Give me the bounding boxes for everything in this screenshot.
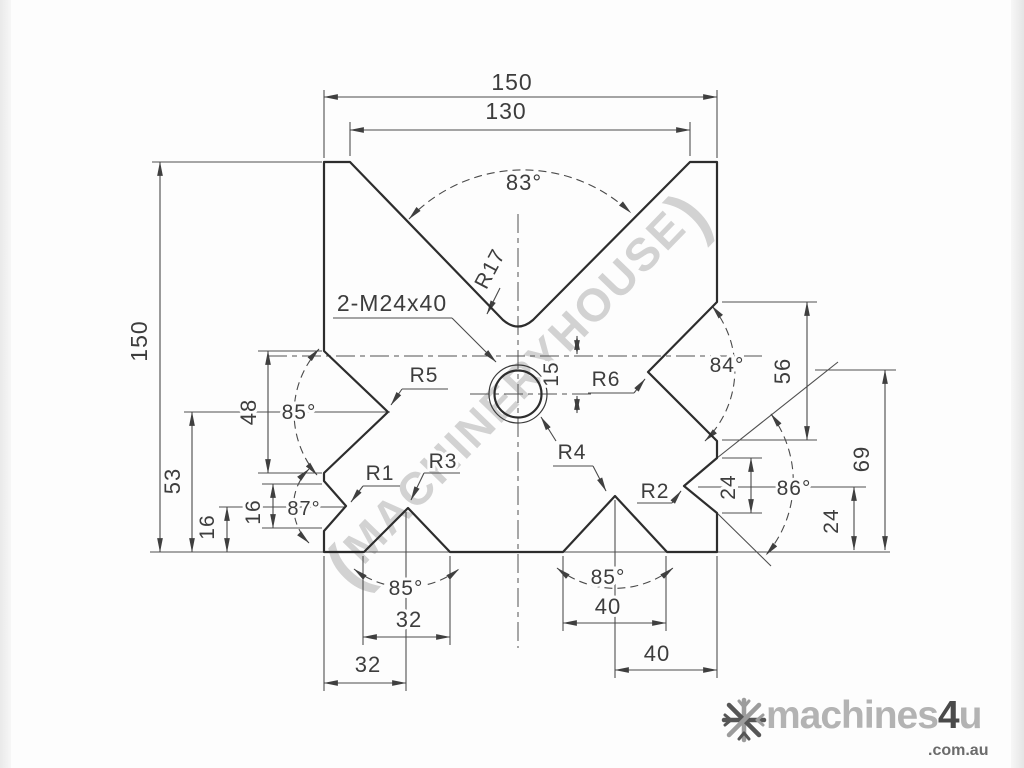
logo-wordmark[interactable]: machines4u — [766, 696, 981, 735]
angle-label-left: 85° — [282, 401, 317, 424]
radius-label-r2: R2 — [641, 480, 670, 503]
dim-label-top-opening: 130 — [485, 98, 526, 124]
dim-label-40-position: 40 — [644, 641, 670, 666]
angle-label-bottom-left: 85° — [389, 577, 424, 600]
dim-label-24-inner: 24 — [717, 474, 740, 499]
dim-label-32-opening: 32 — [396, 607, 422, 632]
dim-label-56: 56 — [770, 358, 795, 384]
dim-label-top-width: 150 — [491, 69, 532, 95]
dim-label-15: 15 — [540, 361, 563, 386]
die-block-drawing: 150 130 83° R17 2-M24x40 R5 R6 15 84° 56… — [0, 0, 1024, 768]
logo-domain: .com.au — [928, 742, 988, 760]
angle-label-left-small: 87° — [287, 498, 320, 520]
dim-label-40-opening: 40 — [595, 594, 621, 619]
angle-label-right: 84° — [710, 354, 745, 377]
angle-label-right-small: 86° — [777, 477, 812, 500]
centerlines — [268, 214, 762, 648]
scanned-technical-drawing: (MACHINERYHOUSE) — [0, 0, 1024, 768]
logo-part-u: u — [959, 694, 982, 737]
dim-label-left-height: 150 — [126, 320, 152, 361]
radius-label-r6: R6 — [592, 368, 621, 391]
dim-label-24-outer: 24 — [820, 508, 843, 533]
angle-label-top: 83° — [506, 170, 542, 195]
thread-note-label: 2-M24x40 — [337, 290, 447, 316]
dim-label-53: 53 — [160, 468, 185, 494]
radius-label-r4: R4 — [558, 441, 587, 464]
logo-part-machines: machines — [766, 694, 938, 737]
dimension-labels: 150 130 83° R17 2-M24x40 R5 R6 15 84° 56… — [126, 69, 874, 677]
dim-label-48: 48 — [236, 399, 261, 425]
radius-label-r5: R5 — [410, 364, 439, 387]
angle-label-bottom-right: 85° — [591, 566, 626, 589]
radius-label-r1: R1 — [366, 462, 395, 485]
logo-part-4: 4 — [938, 694, 959, 737]
radius-label-r3: R3 — [429, 450, 458, 473]
radius-label-r17: R17 — [470, 245, 510, 292]
snowflake-icon — [721, 697, 767, 743]
dim-label-69: 69 — [849, 446, 874, 472]
dim-label-16-inner: 16 — [242, 499, 265, 524]
dim-label-32-position: 32 — [355, 652, 381, 677]
dim-label-16-outer: 16 — [196, 514, 219, 539]
